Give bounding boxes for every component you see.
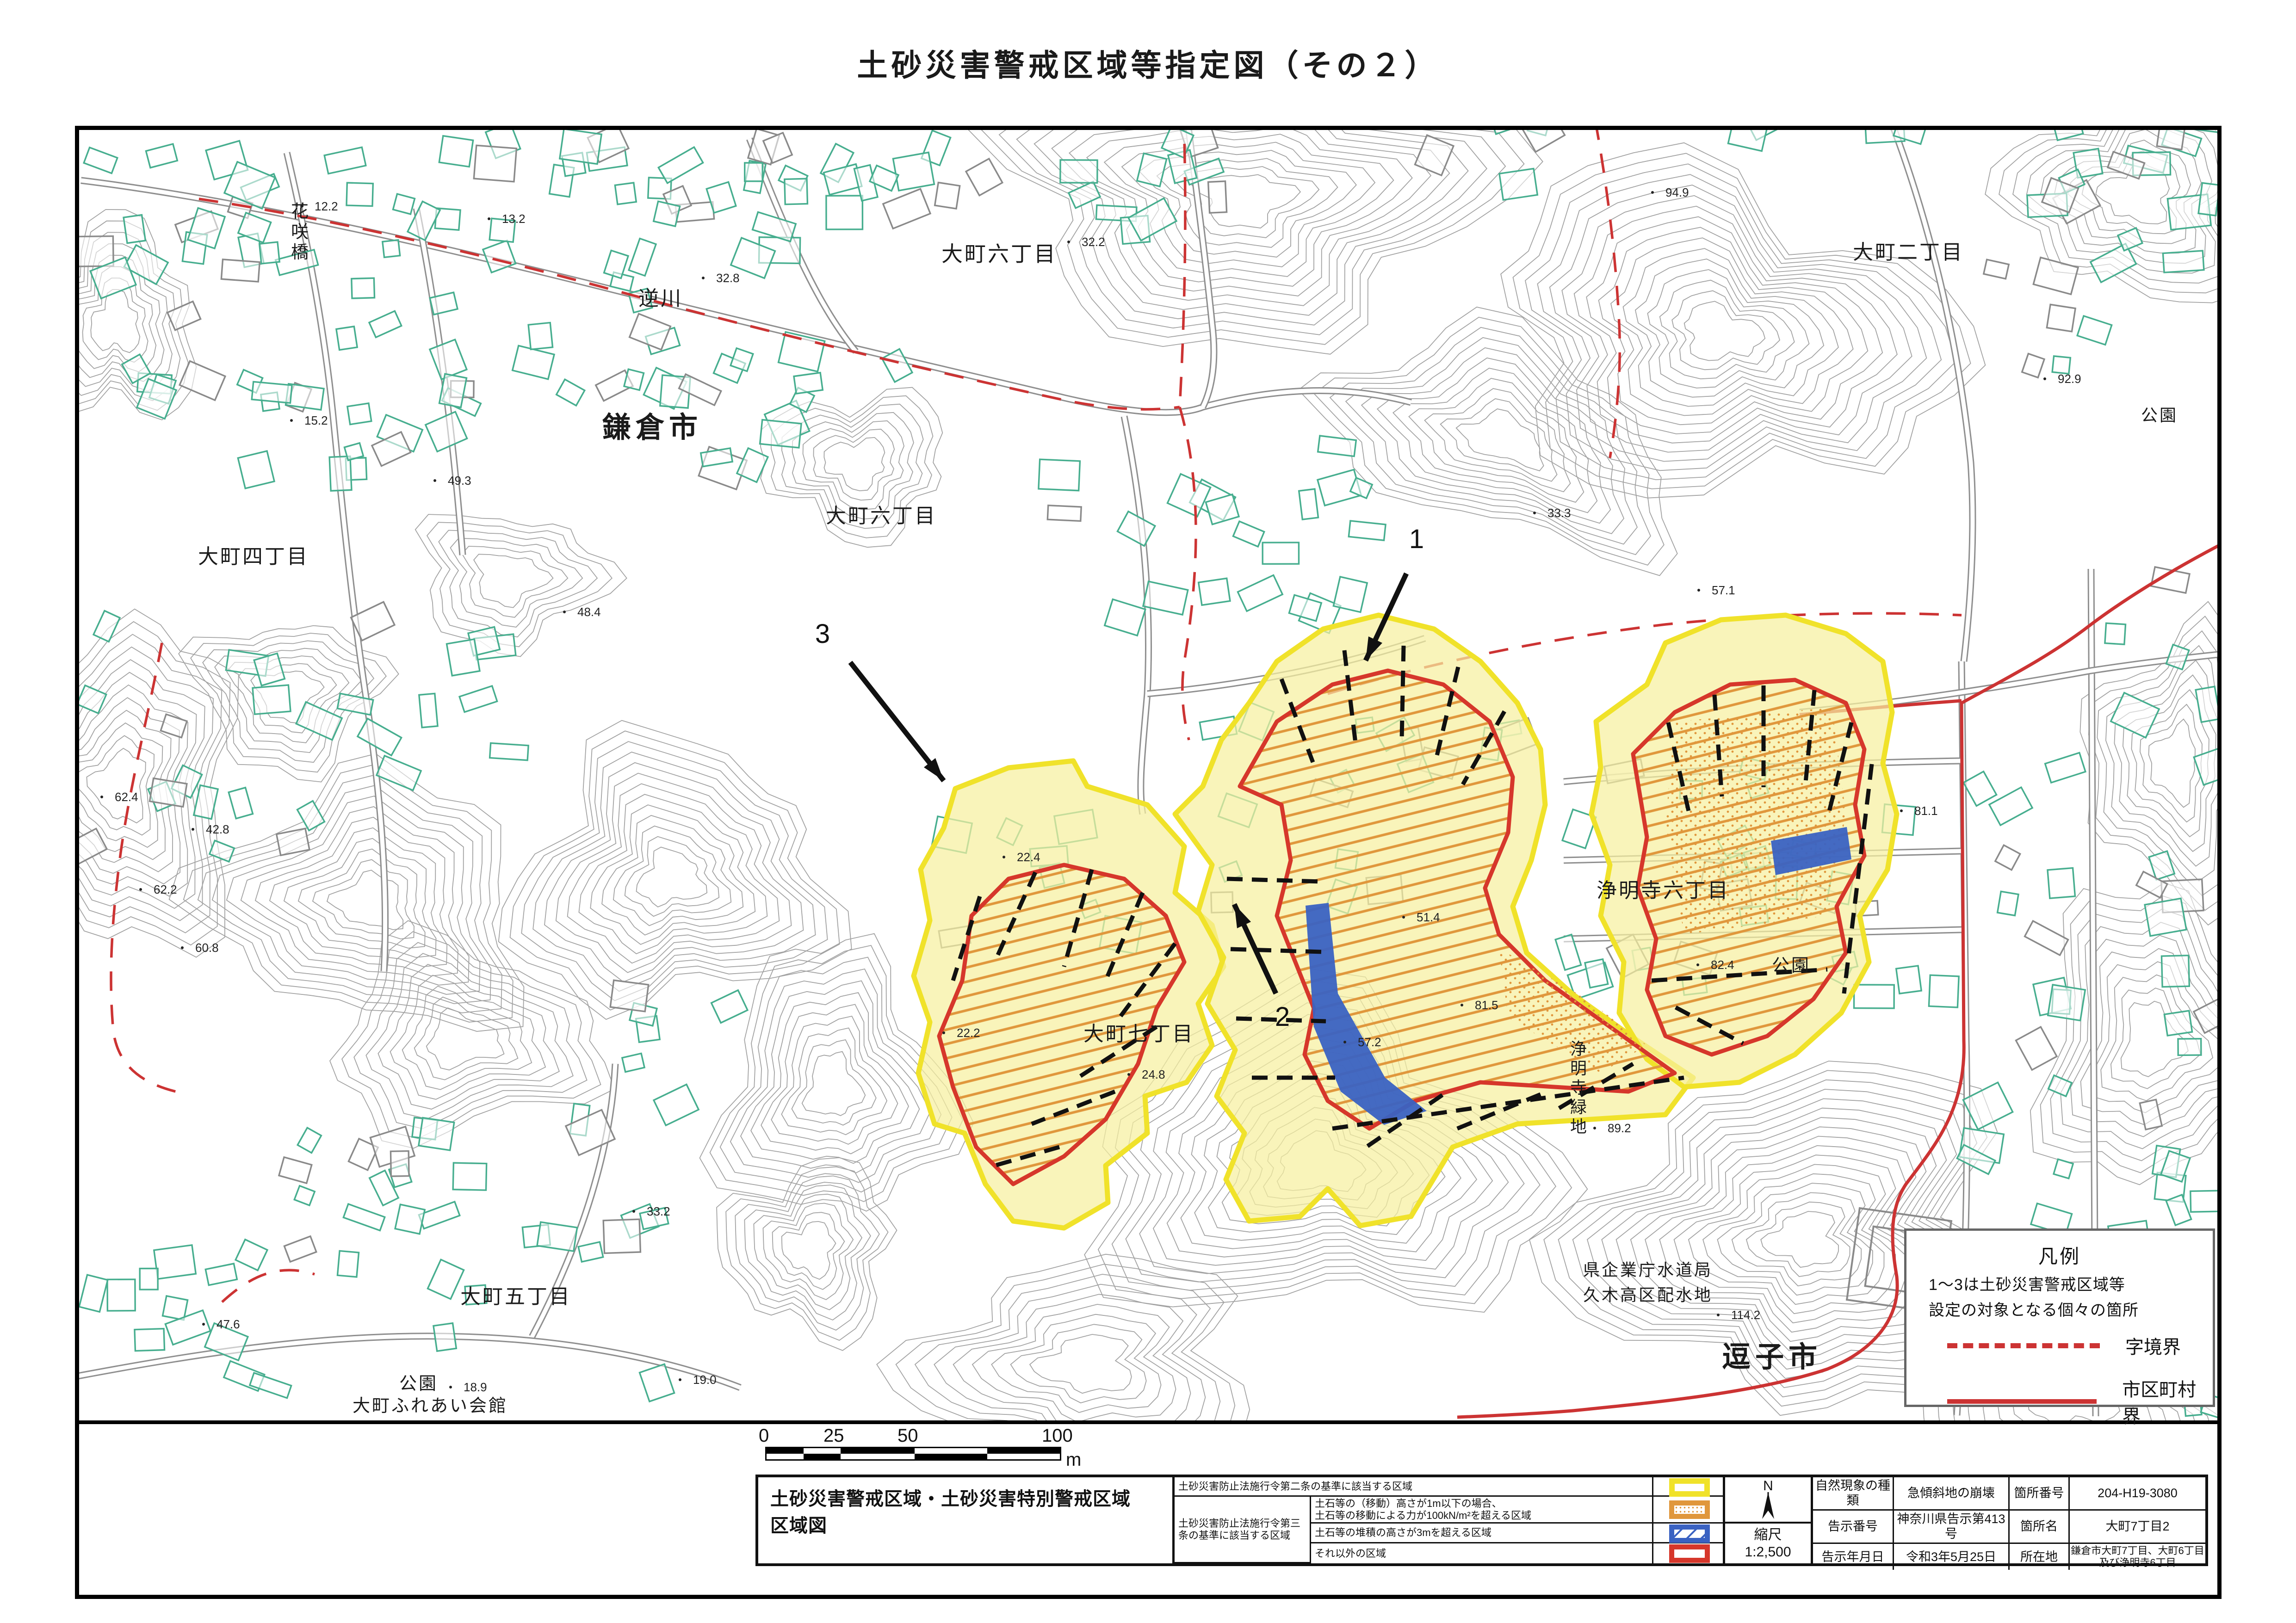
spot-elevation: 81.5 [1475, 998, 1498, 1012]
info-label: 自然現象の種類 [1813, 1477, 1894, 1511]
solid-boundary-label: 市区町村界 [2122, 1375, 2213, 1428]
map-frame: 12.213.232.832.215.249.348.462.442.862.2… [75, 126, 2222, 1599]
scale-bar-strip [765, 1447, 1061, 1461]
info-value: 204-H19-3080 [2070, 1477, 2205, 1511]
map-area: 12.213.232.832.215.249.348.462.442.862.2… [79, 130, 2217, 1424]
spot-elevation: 12.2 [315, 199, 338, 213]
map-label: 大町四丁目 [198, 545, 309, 568]
spot-elevation: 62.2 [154, 882, 177, 896]
map-label: 大町六丁目 [941, 242, 1057, 266]
svg-text:3: 3 [815, 619, 830, 649]
svg-text:寺: 寺 [1570, 1078, 1587, 1097]
scale-label: 縮尺 [1754, 1526, 1782, 1544]
legend-note-line2: 設定の対象となる個々の箇所 [1929, 1297, 2213, 1320]
scale-unit: m [1066, 1450, 1081, 1470]
map-label-vertical: 浄明寺緑地 [1570, 1039, 1587, 1136]
info-label: 所在地 [2010, 1544, 2070, 1570]
north-scale-cell: N 縮尺 1:2,500 [1725, 1477, 1813, 1563]
map-label: 逗子市 [1722, 1341, 1822, 1373]
spot-elevation: 33.2 [647, 1204, 670, 1218]
swatch-special-zone-deposit [1669, 1524, 1710, 1543]
spot-elevation: 32.2 [1082, 235, 1105, 249]
spot-elevation: 18.9 [464, 1380, 487, 1394]
legend-row1-label: 土砂災害防止法施行令第二条の基準に該当する区域 [1175, 1477, 1653, 1497]
svg-text:花: 花 [291, 202, 309, 222]
scale-value: 1:2,500 [1745, 1543, 1791, 1561]
legend-row2-label: 土石等の（移動）高さが1m以下の場合、土石等の移動による力が100kN/m²を超… [1311, 1497, 1653, 1524]
spot-elevation: 51.4 [1417, 910, 1440, 924]
map-sheet: 土砂災害警戒区域等指定図（その２） 12.213.232.832.215.249… [0, 0, 2296, 1623]
spot-elevation: 48.4 [577, 605, 601, 619]
scale-tick-50: 50 [897, 1426, 918, 1446]
spot-elevation: 24.8 [1142, 1068, 1165, 1081]
solid-boundary-sample [1947, 1399, 2097, 1404]
info-value: 鎌倉市大町7丁目、大町6丁目及び浄明寺6丁目 [2070, 1544, 2205, 1570]
svg-text:2: 2 [1275, 1002, 1290, 1032]
svg-text:浄: 浄 [1570, 1039, 1587, 1058]
map-label: 公園 [2141, 406, 2178, 425]
spot-elevation: 19.0 [693, 1373, 717, 1387]
map-label-vertical: 花咲橋 [291, 202, 309, 262]
map-label: 大町二丁目 [1853, 241, 1964, 264]
legend-group-label: 土砂災害防止法施行令第三条の基準に該当する区域 [1175, 1497, 1311, 1563]
zone-legend: 土砂災害防止法施行令第二条の基準に該当する区域 土砂災害防止法施行令第三条の基準… [1175, 1477, 1725, 1563]
info-value: 急傾斜地の崩壊 [1894, 1477, 2010, 1511]
spot-elevation: 33.3 [1547, 506, 1571, 520]
info-value: 令和3年5月25日 [1894, 1544, 2010, 1570]
spot-elevation: 32.8 [716, 271, 740, 285]
scale-tick-0: 0 [759, 1426, 769, 1446]
spot-elevation: 94.9 [1665, 185, 1689, 199]
scale-bar: 0 25 50 100 m [759, 1426, 1092, 1472]
svg-text:1: 1 [1409, 524, 1424, 554]
svg-text:明: 明 [1570, 1059, 1587, 1078]
title-block-table: 土砂災害警戒区域・土砂災害特別警戒区域 区域図 土砂災害防止法施行令第二条の基準… [755, 1475, 2208, 1566]
map-label: 鎌倉市 [602, 412, 702, 444]
swatch-special-zone-other [1669, 1544, 1710, 1563]
legend-row3-label: 土石等の堆積の高さが3mを超える区域 [1311, 1524, 1653, 1543]
scale-tick-100: 100 [1042, 1426, 1073, 1446]
spot-elevation: 47.6 [217, 1317, 240, 1331]
spot-elevation: 57.1 [1712, 583, 1735, 597]
swatch-warning-zone [1669, 1478, 1710, 1497]
sheet-subtitle-line2: 区域図 [770, 1516, 827, 1536]
legend-row4-label: それ以外の区域 [1311, 1543, 1653, 1563]
info-label: 箇所番号 [2010, 1477, 2070, 1511]
svg-text:咲: 咲 [291, 222, 309, 242]
spot-elevation: 13.2 [502, 212, 526, 226]
spot-elevation: 114.2 [1731, 1308, 1760, 1322]
map-label: 久木高区配水地 [1583, 1285, 1713, 1304]
sheet-subtitle: 土砂災害警戒区域・土砂災害特別警戒区域 区域図 [758, 1477, 1175, 1563]
scale-tick-25: 25 [823, 1426, 844, 1446]
info-value: 大町7丁目2 [2070, 1511, 2205, 1544]
designation-info-table: 自然現象の種類 急傾斜地の崩壊 箇所番号 204-H19-3080 告示番号 神… [1813, 1477, 2205, 1563]
spot-elevation: 15.2 [304, 413, 328, 427]
info-label: 箇所名 [2010, 1511, 2070, 1544]
spot-elevation: 57.2 [1358, 1035, 1381, 1049]
spot-elevation: 42.8 [206, 822, 229, 836]
info-value: 神奈川県告示第413号 [1894, 1511, 2010, 1544]
legend-title: 凡例 [1906, 1241, 2213, 1269]
spot-elevation: 82.4 [1711, 958, 1734, 972]
spot-elevation: 62.4 [115, 790, 138, 804]
map-label: 公園 [1772, 956, 1811, 975]
svg-text:地: 地 [1570, 1117, 1587, 1136]
dashed-boundary-sample [1947, 1343, 2100, 1348]
svg-text:N: N [1763, 1478, 1773, 1493]
spot-elevation: 22.2 [957, 1026, 980, 1040]
spot-elevation: 81.1 [1914, 804, 1938, 818]
spot-elevation: 49.3 [448, 474, 471, 488]
spot-elevation: 92.9 [2058, 372, 2081, 386]
sheet-subtitle-line1: 土砂災害警戒区域・土砂災害特別警戒区域 [770, 1489, 1131, 1509]
north-arrow-icon: N [1725, 1477, 1811, 1524]
spot-elevation: 22.4 [1017, 850, 1040, 864]
info-label: 告示番号 [1813, 1511, 1894, 1544]
svg-text:緑: 緑 [1570, 1098, 1587, 1117]
svg-text:橋: 橋 [291, 243, 309, 262]
map-label: 県企業庁水道局 [1583, 1260, 1713, 1279]
map-label: 公園 [399, 1374, 438, 1394]
map-label: 大町五丁目 [460, 1285, 571, 1308]
map-label: 大町七丁目 [1083, 1023, 1194, 1045]
dashed-boundary-label: 字境界 [2125, 1332, 2181, 1359]
info-label: 告示年月日 [1813, 1544, 1894, 1570]
map-label: 大町ふれあい会館 [353, 1396, 508, 1416]
spot-elevation: 89.2 [1608, 1121, 1631, 1135]
legend-note-line1: 1～3は土砂災害警戒区域等 [1929, 1272, 2213, 1295]
spot-elevation: 60.8 [195, 941, 219, 955]
map-canvas: 12.213.232.832.215.249.348.462.442.862.2… [79, 130, 2217, 1420]
map-legend-box: 凡例 1～3は土砂災害警戒区域等 設定の対象となる個々の箇所 字境界 市区町村界 [1904, 1228, 2215, 1407]
page-title: 土砂災害警戒区域等指定図（その２） [0, 41, 2296, 85]
map-label: 逆川 [638, 287, 683, 310]
swatch-special-zone-move [1669, 1500, 1710, 1519]
map-label: 浄明寺六丁目 [1597, 879, 1730, 902]
map-label: 大町六丁目 [826, 505, 937, 527]
